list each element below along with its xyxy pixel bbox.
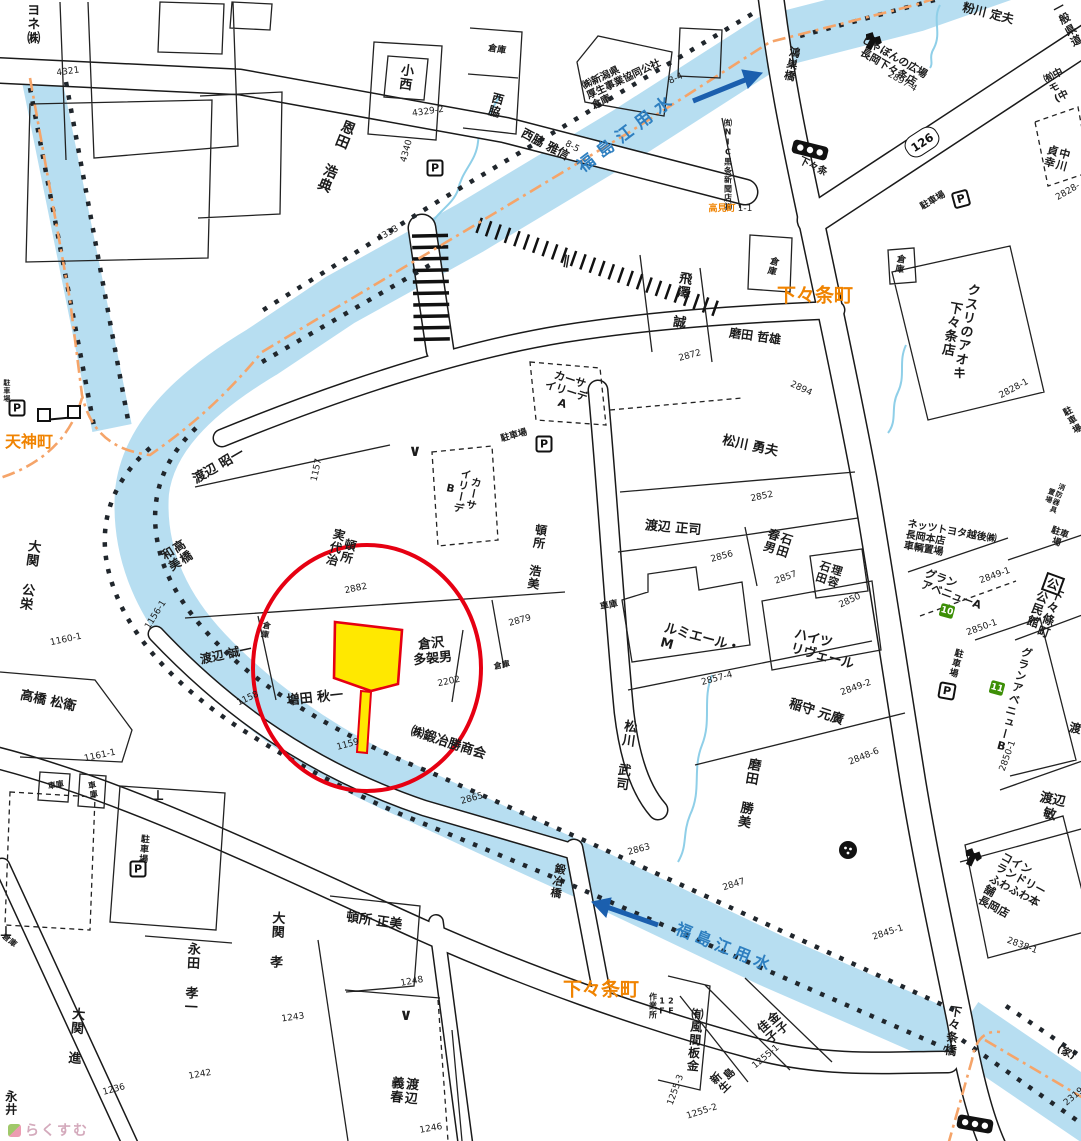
parking-label: 駐車場	[500, 428, 529, 445]
resident-maita-katsumi: 磨田 勝美	[734, 756, 761, 829]
parcel-number: 2865	[460, 791, 485, 807]
warehouse-label: 倉庫	[493, 660, 511, 672]
parcel-number: 2850-1	[965, 618, 998, 638]
route-badge-126: 126	[901, 123, 944, 162]
parcel-number: 1246	[419, 1122, 443, 1136]
resident-niijima: 島 新生	[707, 1062, 741, 1096]
warehouse-label: 倉庫	[259, 620, 271, 639]
parking-label: 駐車場	[919, 190, 947, 212]
parcel-number: 4329-2	[412, 105, 445, 119]
pole-mark: ⊥	[152, 789, 165, 805]
building-glan-avenue-a: グラン アベニューA	[919, 568, 987, 613]
parcel-number: 1157	[310, 458, 325, 483]
warehouse-label: 倉庫	[487, 43, 506, 56]
resident-matsukawa-isao: 松川 勇夫	[721, 434, 779, 460]
road-class-label: 一般県道	[1051, 0, 1081, 50]
building-lumiere: ルミエール・ M	[659, 622, 742, 670]
parcel-number: 2850-1	[998, 739, 1018, 772]
resident-takahashi-matsue: 高橋 松衛	[19, 689, 77, 715]
parcel-number: 1243	[281, 1011, 305, 1024]
parcel-number: 1236	[102, 1082, 127, 1098]
river-name-upper: 福島江用水	[574, 89, 681, 176]
resident-onda: 恩田 浩典	[313, 117, 356, 194]
resident-tonsho-hiromi: 頓所 浩美	[525, 523, 548, 591]
parking-badge: P	[937, 681, 957, 701]
parcel-number: 2879	[508, 613, 533, 629]
parcel-number: 2849-2	[839, 678, 872, 698]
parcel-number: 4321	[56, 65, 80, 78]
parcel-number: 2897-4	[886, 70, 919, 95]
parcel-number: 1248	[400, 975, 424, 989]
parcel-number: 1255-1	[751, 1043, 782, 1071]
parcel-number: 2894	[788, 380, 813, 399]
resident-nishiwaki-masanobu: 西脇 雅信	[519, 127, 571, 163]
parcel-number: 1-1	[738, 204, 753, 214]
resident-kokawa: 粉川 定夫	[961, 1, 1015, 27]
facility-fire-equipment: 消防器具 置場	[1040, 479, 1066, 514]
resident-nishiwaki: 西脇	[485, 91, 505, 120]
garage-label: 車庫	[47, 780, 64, 792]
parcel-number: 8-4	[667, 71, 685, 86]
bridge-mark: ∥	[562, 254, 571, 269]
parcel-number: 2852	[750, 490, 775, 505]
resident-nakagawa: 中川 貞幸	[1041, 143, 1071, 173]
watermark: らくすむ	[8, 1120, 89, 1140]
parcel-number: 1242	[188, 1068, 212, 1082]
bridge-kounosu: 鴻巣橋	[781, 45, 801, 83]
shop-riyo-ishida: 理容 石田	[813, 559, 844, 589]
parcel-number: 4340	[399, 139, 415, 164]
map-canvas[interactable]: ヨネ㈱4321恩田 浩典小西4329-2倉庫西脇4340西脇 雅信8-5㈱新潟県…	[0, 0, 1081, 1141]
building-casa-b: カーサ イリーデ B	[439, 465, 483, 517]
shop-shabon: しゃぼんの広場 長岡下々条店	[853, 34, 928, 91]
resident-kaneko: 金子 佳子	[753, 1009, 790, 1046]
company-naka-partial: ㈲中 モ (中	[1042, 66, 1075, 105]
watermark-text: らくすむ	[25, 1120, 89, 1140]
resident-tonsho-masami: 頓所 正美	[345, 911, 403, 933]
resident-konishi: 小西	[395, 62, 413, 92]
house-note: (家)	[1055, 1044, 1077, 1062]
parking-badge: P	[130, 861, 147, 878]
resident-masuda: 増田 秋一	[286, 689, 344, 709]
parking-label: 駐車場	[2, 379, 10, 403]
parcel-number: 2849-1	[978, 566, 1011, 586]
river-name-lower: 福島江用水	[673, 920, 777, 976]
parking-badge: P	[951, 189, 972, 210]
parking-badge: P	[536, 436, 553, 453]
parcel-number: 1160-1	[49, 632, 82, 648]
resident-inamori: 稲守 元廣	[787, 697, 845, 728]
parcel-number: 2828-1	[998, 377, 1031, 401]
town-takamicho: 高見町	[708, 204, 735, 214]
parcel-number: 4333	[376, 224, 401, 244]
building-casa-a: カーサ イリーデ A	[539, 368, 592, 417]
parking-badge: P	[9, 400, 26, 417]
parcel-number: 2828-	[1054, 181, 1081, 203]
resident-ozeki-koei: 大関 公栄	[16, 538, 40, 611]
bridge-kaji: 鍛冶橋	[548, 862, 566, 900]
warehouse-label: 倉庫	[892, 253, 905, 274]
shop-kusuri-aoki: クスリのアオキ 下々条店	[934, 279, 980, 381]
parking-label: 駐車場	[1062, 406, 1081, 437]
bridge-shimojojo: 下々条橋	[942, 1004, 963, 1057]
gate-mark: ∨	[409, 442, 422, 460]
parcel-number: 2319	[1062, 1086, 1081, 1108]
parcel-number: 2847	[722, 877, 747, 894]
resident-tobisawa: 飛澤 誠	[669, 270, 691, 329]
label-layer: ヨネ㈱4321恩田 浩典小西4329-2倉庫西脇4340西脇 雅信8-5㈱新潟県…	[0, 0, 1081, 1141]
warehouse-label: 倉庫	[0, 932, 18, 949]
parcel-number: 1159	[336, 737, 361, 753]
parcel-number: 1156-1	[143, 599, 168, 631]
company-kajikatsu: ㈱鍛冶勝商会	[409, 725, 488, 763]
company-netz-toyota: ネッツトヨタ越後㈱ 長岡本店 車輌置場	[903, 519, 997, 568]
facility-kouminkan: 下々條町 公民館	[1021, 582, 1064, 640]
garage-label: 車庫	[86, 780, 98, 799]
garage-label: 車庫	[599, 599, 619, 613]
parcel-number: 1255-3	[666, 1073, 686, 1106]
parcel-number: 1255-2	[685, 1102, 718, 1121]
resident-watanabe-toshi: 渡辺 敏	[1033, 791, 1068, 826]
gate-mark: ∨	[400, 1006, 413, 1024]
parcel-number: 2838-1	[1005, 936, 1038, 956]
resident-ozeki-susumu: 大関 進	[64, 1006, 84, 1065]
building-glan-avenue-b: グランアベニューB	[993, 645, 1033, 754]
resident-maita-tetsuo: 磨田 哲雄	[728, 327, 782, 348]
resident-watanabe-seiji: 渡辺 正司	[644, 519, 702, 538]
parcel-number: 2848-6	[847, 746, 880, 767]
parcel-number: 2857-4	[700, 670, 733, 688]
parking-label: 駐車場	[1044, 525, 1073, 552]
block-badge-10: 10	[939, 603, 956, 619]
parking-label: 駐車場	[137, 834, 150, 865]
signal-label-shimojojo: 下々条	[797, 155, 829, 178]
parcel-number: 2845-1	[871, 923, 904, 942]
parking-label: 駐車場	[946, 647, 963, 679]
resident-takahashi-kazumi: 高橋 和美	[158, 538, 195, 574]
resident-nagata: 永田 孝一	[181, 942, 199, 1015]
resident-watanabe-akiichi: 渡辺 昭一	[191, 447, 247, 488]
parcel-number: 2850	[837, 592, 862, 611]
town-tenjincho: 天神町	[5, 433, 53, 451]
resident-ishida-haruo: 石田 春男	[760, 526, 794, 559]
parcel-number: 2882	[344, 582, 369, 597]
parcel-number: 1158	[235, 690, 260, 709]
building-heights-rivere: ハイツ リヴェール	[789, 628, 859, 673]
company-yone: ヨネ㈱	[24, 3, 39, 45]
resident-matsukawa-takeshi: 松川 武司	[612, 718, 636, 791]
resident-watanabe-partial: 渡	[1068, 721, 1081, 737]
resident-watanabe-yoshiharu: 渡辺 義春	[385, 1063, 418, 1116]
block-badge-11: 11	[989, 680, 1006, 696]
town-shimojojo-upper: 下々条町	[777, 285, 853, 306]
shop-coin-laundry: コイン ランドリー ふわふわ本舗 長岡店	[976, 851, 1061, 935]
rakusumu-logo	[8, 1124, 21, 1137]
resident-watanabe-seiichi: 渡辺 誠一	[199, 643, 253, 667]
resident-tonsho-miyoji: 頓所 実代治	[323, 527, 359, 572]
parcel-number: 1161-1	[83, 748, 116, 764]
company-nic: ㈲NIC黒条新聞店㈱	[723, 119, 732, 212]
resident-nagai: 永井	[3, 1090, 16, 1116]
parcel-number: 2857	[774, 569, 799, 586]
company-kosei: ㈱新潟県 厚生事業協同公社 倉庫	[581, 48, 668, 112]
parcel-number: 8-5	[563, 139, 581, 155]
company-kazama: ㈲風間板金	[684, 1007, 703, 1073]
resident-ozeki-takashi: 大関 孝	[266, 911, 284, 970]
warehouse-label: 倉庫	[765, 255, 780, 277]
building-floor-note: 2F 1F 作業所	[648, 993, 675, 1020]
parcel-number: 2202	[437, 675, 462, 690]
parcel-number: 2863	[627, 842, 652, 858]
parcel-number: 2856	[710, 549, 735, 565]
town-shimojojo-lower: 下々条町	[563, 979, 639, 1000]
pole-mark: ⊥	[0, 925, 12, 941]
kouminkan-badge: 公	[1041, 572, 1065, 596]
parcel-number: 2872	[678, 348, 703, 364]
parking-badge: P	[427, 160, 444, 177]
resident-kurasawa: 倉沢 多袈男	[411, 635, 453, 668]
